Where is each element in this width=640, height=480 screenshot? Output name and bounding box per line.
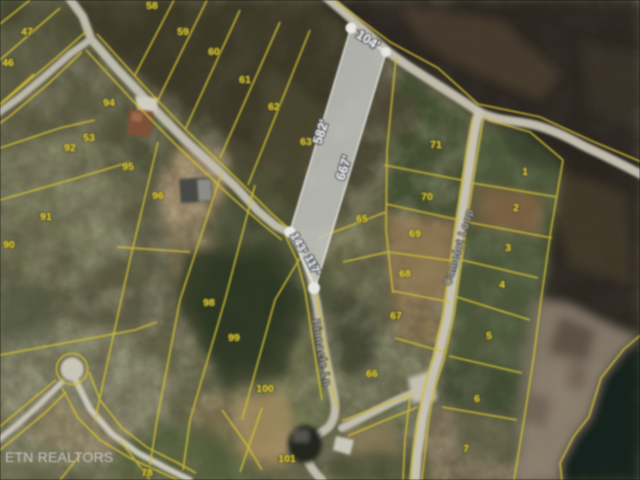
svg-text:70: 70 (421, 191, 433, 203)
svg-text:91: 91 (40, 211, 52, 223)
svg-text:98: 98 (203, 297, 215, 309)
svg-text:53: 53 (83, 132, 95, 144)
svg-text:67: 67 (390, 310, 402, 322)
svg-text:60: 60 (208, 46, 220, 58)
svg-text:3: 3 (505, 242, 511, 254)
svg-text:ETN REALTORS: ETN REALTORS (5, 449, 113, 465)
svg-text:59: 59 (177, 26, 189, 38)
svg-text:100: 100 (256, 383, 274, 395)
svg-text:101: 101 (278, 453, 296, 465)
svg-text:46: 46 (2, 57, 14, 69)
svg-text:6: 6 (474, 393, 480, 405)
svg-text:96: 96 (152, 190, 164, 202)
svg-text:71: 71 (430, 139, 442, 151)
svg-text:99: 99 (228, 332, 240, 344)
svg-text:66: 66 (366, 368, 378, 380)
svg-text:95: 95 (122, 161, 134, 173)
svg-text:94: 94 (103, 97, 115, 109)
svg-text:1: 1 (522, 166, 528, 178)
svg-text:61: 61 (239, 74, 251, 86)
svg-text:58: 58 (146, 0, 158, 12)
svg-text:2: 2 (513, 202, 519, 214)
svg-text:90: 90 (3, 239, 15, 251)
svg-text:68: 68 (399, 268, 411, 280)
svg-text:65: 65 (356, 213, 368, 225)
svg-text:69: 69 (409, 228, 421, 240)
svg-text:4: 4 (499, 279, 505, 291)
svg-text:7: 7 (463, 443, 469, 455)
svg-text:62: 62 (268, 101, 280, 113)
svg-text:92: 92 (64, 142, 76, 154)
svg-text:47: 47 (21, 26, 33, 38)
svg-text:78: 78 (141, 467, 153, 479)
svg-text:5: 5 (486, 330, 492, 342)
